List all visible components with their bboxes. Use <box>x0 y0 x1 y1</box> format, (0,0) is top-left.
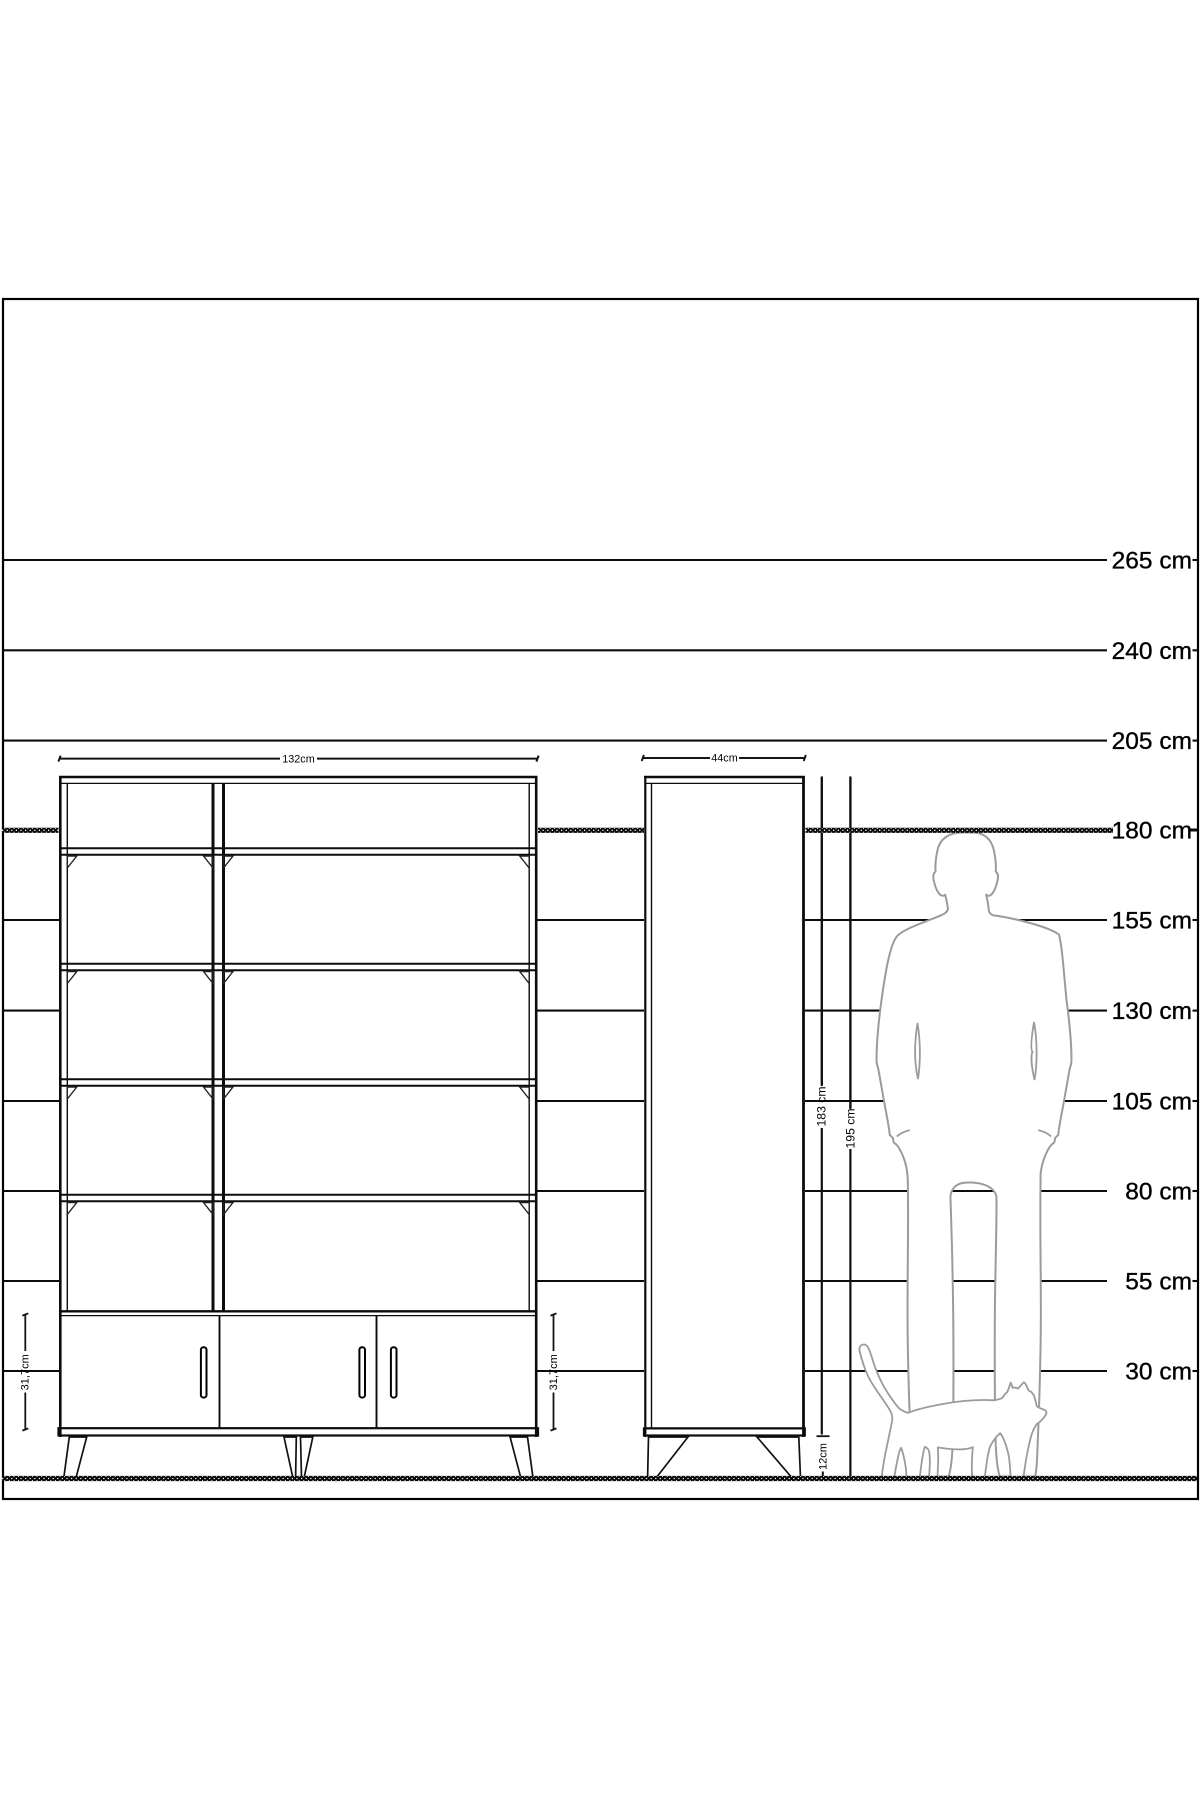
svg-text:155 cm: 155 cm <box>1112 908 1192 935</box>
svg-text:31,7cm: 31,7cm <box>548 1354 560 1390</box>
svg-text:180 cm: 180 cm <box>1112 818 1192 845</box>
svg-text:205 cm: 205 cm <box>1112 728 1192 755</box>
svg-text:183 cm: 183 cm <box>815 1087 829 1127</box>
svg-text:195 cm: 195 cm <box>843 1109 857 1149</box>
svg-text:130 cm: 130 cm <box>1112 998 1192 1025</box>
svg-text:80 cm: 80 cm <box>1125 1179 1192 1206</box>
svg-text:55 cm: 55 cm <box>1125 1269 1192 1296</box>
svg-text:132cm: 132cm <box>282 753 314 765</box>
svg-text:31,7cm: 31,7cm <box>20 1354 32 1390</box>
svg-text:30 cm: 30 cm <box>1125 1359 1192 1386</box>
svg-text:12cm: 12cm <box>818 1443 830 1470</box>
svg-text:265 cm: 265 cm <box>1112 548 1192 575</box>
svg-text:240 cm: 240 cm <box>1112 638 1192 665</box>
svg-text:44cm: 44cm <box>711 753 737 765</box>
svg-text:105 cm: 105 cm <box>1112 1089 1192 1116</box>
